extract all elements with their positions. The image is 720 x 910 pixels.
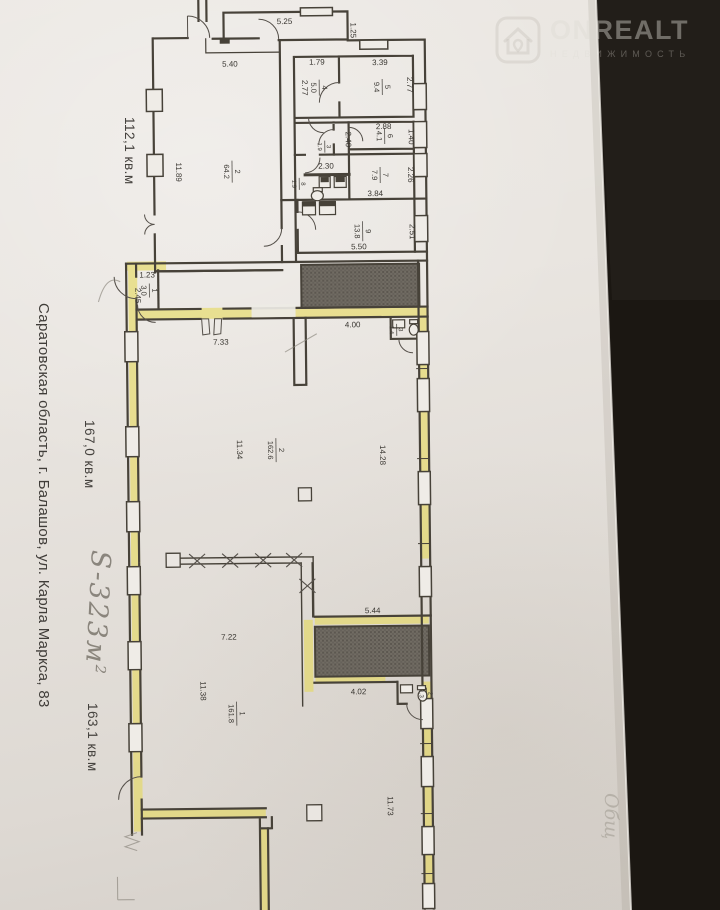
- dim-2-77-b: 2.77: [405, 77, 414, 93]
- dim-11-38: 11.38: [198, 681, 207, 701]
- dim-3-39: 3.39: [372, 58, 388, 67]
- dim-2-51: 2.51: [408, 224, 417, 240]
- area-label-lower: 163,1 кв.м: [85, 703, 100, 772]
- svg-text:1: 1: [150, 288, 159, 292]
- dim-2-30: 2.30: [318, 162, 334, 171]
- svg-text:3: 3: [325, 145, 331, 149]
- svg-text:9.4: 9.4: [372, 82, 381, 93]
- dim-1-79: 1.79: [309, 58, 325, 67]
- address-label: Саратовская область, г. Балашов, ул. Кар…: [35, 303, 52, 708]
- dim-2-77-a: 2.77: [300, 80, 309, 96]
- svg-text:1: 1: [238, 711, 247, 715]
- svg-text:7.9: 7.9: [370, 170, 379, 181]
- svg-text:3: 3: [397, 328, 403, 332]
- table-background: [588, 0, 720, 910]
- faint-handwriting: Общ: [600, 793, 622, 839]
- svg-text:7: 7: [381, 173, 390, 177]
- handwritten-superscript: 2: [91, 664, 108, 676]
- dim-3-84: 3.84: [367, 189, 383, 198]
- svg-text:4.1: 4.1: [375, 131, 384, 142]
- dim-5-25: 5.25: [277, 17, 293, 26]
- svg-text:8: 8: [299, 182, 305, 186]
- dim-4-02: 4.02: [351, 687, 367, 696]
- dim-7-33: 7.33: [213, 338, 229, 347]
- svg-text:161.8: 161.8: [227, 704, 236, 723]
- dim-5-40: 5.40: [222, 60, 238, 69]
- dim-2-40: 2.40: [344, 132, 353, 148]
- handwritten-total-area: S-323м2: [78, 549, 116, 676]
- dim-1-25: 1.25: [349, 22, 358, 38]
- svg-text:2: 2: [277, 448, 286, 452]
- svg-text:1.9: 1.9: [290, 180, 296, 189]
- area-label-upper: 112,1 кв.м: [122, 117, 137, 185]
- dim-5-44: 5.44: [365, 606, 381, 615]
- dim-1-23: 1.23: [139, 270, 155, 279]
- dim-14-28: 14.28: [378, 445, 387, 466]
- demolition-x-marks: [189, 553, 315, 594]
- area-label-middle: 167,0 кв.м: [82, 420, 97, 489]
- svg-text:162.6: 162.6: [266, 441, 275, 460]
- dim-4-00: 4.00: [345, 320, 361, 329]
- svg-text:64.2: 64.2: [222, 164, 231, 179]
- svg-text:1.9: 1.9: [316, 142, 322, 151]
- svg-text:1.4: 1.4: [388, 326, 394, 335]
- svg-text:9: 9: [364, 229, 373, 233]
- dim-1-40: 1.40: [407, 129, 416, 145]
- dim-11-34: 11.34: [235, 440, 244, 460]
- floorplan-drawing: 5.25 5.40 1.79 3.39 2.88 2.30 3.84 5.50 …: [0, 0, 720, 910]
- dim-7-22: 7.22: [221, 633, 237, 642]
- svg-text:4: 4: [320, 85, 329, 89]
- erased-patch: [251, 304, 295, 317]
- svg-text:1.3: 1.3: [418, 689, 424, 698]
- svg-text:13.8: 13.8: [353, 224, 362, 239]
- floorplan-photo: 5.25 5.40 1.79 3.39 2.88 2.30 3.84 5.50 …: [0, 0, 720, 910]
- svg-text:6: 6: [386, 134, 395, 138]
- dim-11-89: 11.89: [174, 162, 183, 182]
- double-door: [202, 319, 222, 335]
- svg-text:5.0: 5.0: [309, 82, 318, 93]
- svg-text:3.0: 3.0: [139, 285, 148, 296]
- svg-text:2: 2: [233, 169, 242, 173]
- dim-2-26: 2.26: [406, 167, 415, 183]
- svg-text:5: 5: [383, 85, 392, 89]
- columns: [165, 488, 321, 823]
- dim-5-50: 5.50: [351, 242, 367, 251]
- dim-2-88: 2.88: [376, 122, 392, 131]
- dim-11-73: 11.73: [386, 796, 395, 816]
